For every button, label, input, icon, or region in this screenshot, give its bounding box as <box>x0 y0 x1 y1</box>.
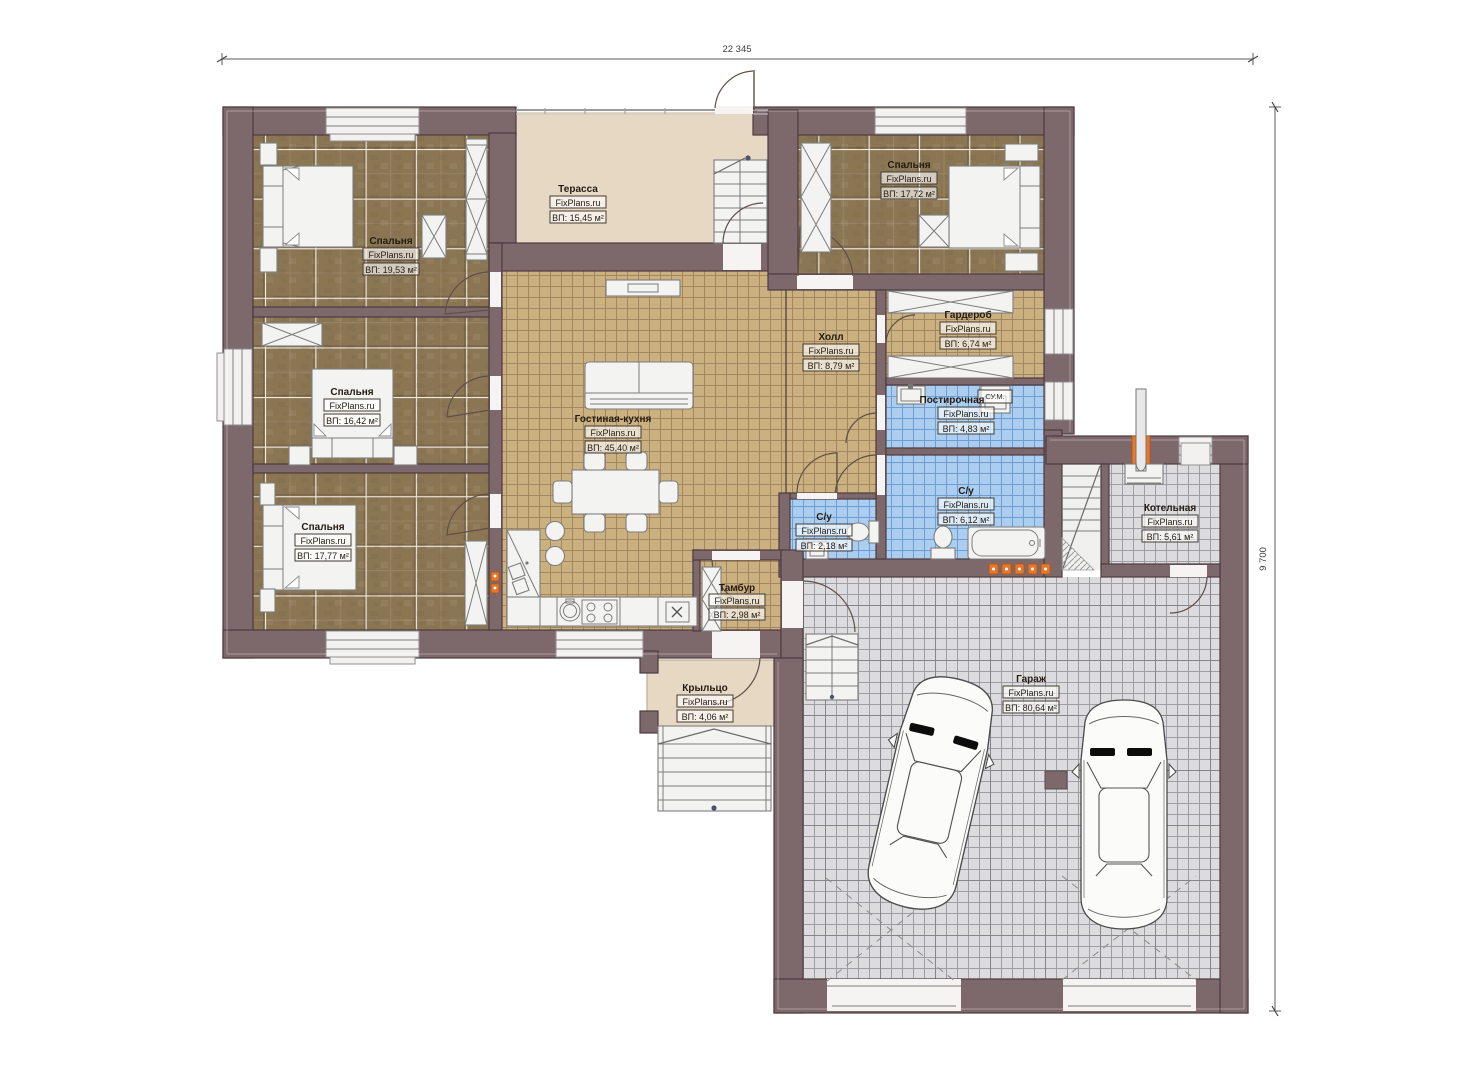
svg-text:С/у: С/у <box>816 512 832 523</box>
svg-text:Холл: Холл <box>818 332 843 343</box>
svg-text:Спальня: Спальня <box>330 387 373 398</box>
svg-text:ВП: 4,83 м²: ВП: 4,83 м² <box>943 424 990 434</box>
svg-text:FixPlans.ru: FixPlans.ru <box>300 536 345 546</box>
svg-text:ВП: 2,98 м²: ВП: 2,98 м² <box>714 610 761 620</box>
svg-text:Гардероб: Гардероб <box>944 309 991 321</box>
svg-text:9 700: 9 700 <box>1258 547 1269 571</box>
svg-text:Терасса: Терасса <box>558 184 598 195</box>
svg-text:22 345: 22 345 <box>722 44 751 55</box>
svg-text:FixPlans.ru: FixPlans.ru <box>943 500 988 510</box>
svg-text:ВП: 5,61 м²: ВП: 5,61 м² <box>1147 532 1194 542</box>
svg-text:ВП: 4,06 м²: ВП: 4,06 м² <box>682 712 729 722</box>
svg-text:FixPlans.ru: FixPlans.ru <box>801 526 846 536</box>
svg-text:FixPlans.ru: FixPlans.ru <box>943 409 988 419</box>
svg-text:FixPlans.ru: FixPlans.ru <box>590 428 635 438</box>
svg-text:FixPlans.ru: FixPlans.ru <box>808 346 853 356</box>
svg-text:FixPlans.ru: FixPlans.ru <box>1147 517 1192 527</box>
svg-text:FixPlans.ru: FixPlans.ru <box>714 596 759 606</box>
svg-text:Котельная: Котельная <box>1144 503 1197 514</box>
svg-text:Постирочная: Постирочная <box>920 395 985 406</box>
svg-text:FixPlans.ru: FixPlans.ru <box>329 401 374 411</box>
svg-text:FixPlans.ru: FixPlans.ru <box>555 198 600 208</box>
svg-text:ВП: 17,72 м²: ВП: 17,72 м² <box>883 189 935 199</box>
svg-text:ВП: 6,74 м²: ВП: 6,74 м² <box>945 339 992 349</box>
svg-text:FixPlans.ru: FixPlans.ru <box>368 250 413 260</box>
svg-text:Спальня: Спальня <box>887 160 930 171</box>
svg-text:СУ.М.: СУ.М. <box>985 392 1004 401</box>
svg-text:С/у: С/у <box>958 486 974 497</box>
svg-text:Спальня: Спальня <box>301 522 344 533</box>
svg-text:Крыльцо: Крыльцо <box>682 683 728 694</box>
svg-text:ВП: 16,42 м²: ВП: 16,42 м² <box>326 416 378 426</box>
svg-text:FixPlans.ru: FixPlans.ru <box>682 697 727 707</box>
svg-text:ВП: 2,18 м²: ВП: 2,18 м² <box>801 541 848 551</box>
svg-text:ВП: 15,45 м²: ВП: 15,45 м² <box>552 213 604 223</box>
svg-text:ВП: 45,40 м²: ВП: 45,40 м² <box>587 443 639 453</box>
svg-text:Гостиная-кухня: Гостиная-кухня <box>575 414 652 425</box>
svg-text:ВП: 8,79 м²: ВП: 8,79 м² <box>808 361 855 371</box>
svg-text:Гараж: Гараж <box>1016 674 1047 685</box>
svg-text:FixPlans.ru: FixPlans.ru <box>945 324 990 334</box>
svg-text:FixPlans.ru: FixPlans.ru <box>1008 688 1053 698</box>
svg-text:Тамбур: Тамбур <box>719 582 755 594</box>
svg-text:ВП: 6,12 м²: ВП: 6,12 м² <box>943 515 990 525</box>
svg-text:ВП: 17,77 м²: ВП: 17,77 м² <box>297 551 349 561</box>
svg-text:Спальня: Спальня <box>369 236 412 247</box>
svg-text:ВП: 19,53 м²: ВП: 19,53 м² <box>365 265 417 275</box>
svg-text:FixPlans.ru: FixPlans.ru <box>886 174 931 184</box>
svg-text:ВП: 80,64 м²: ВП: 80,64 м² <box>1005 703 1057 713</box>
